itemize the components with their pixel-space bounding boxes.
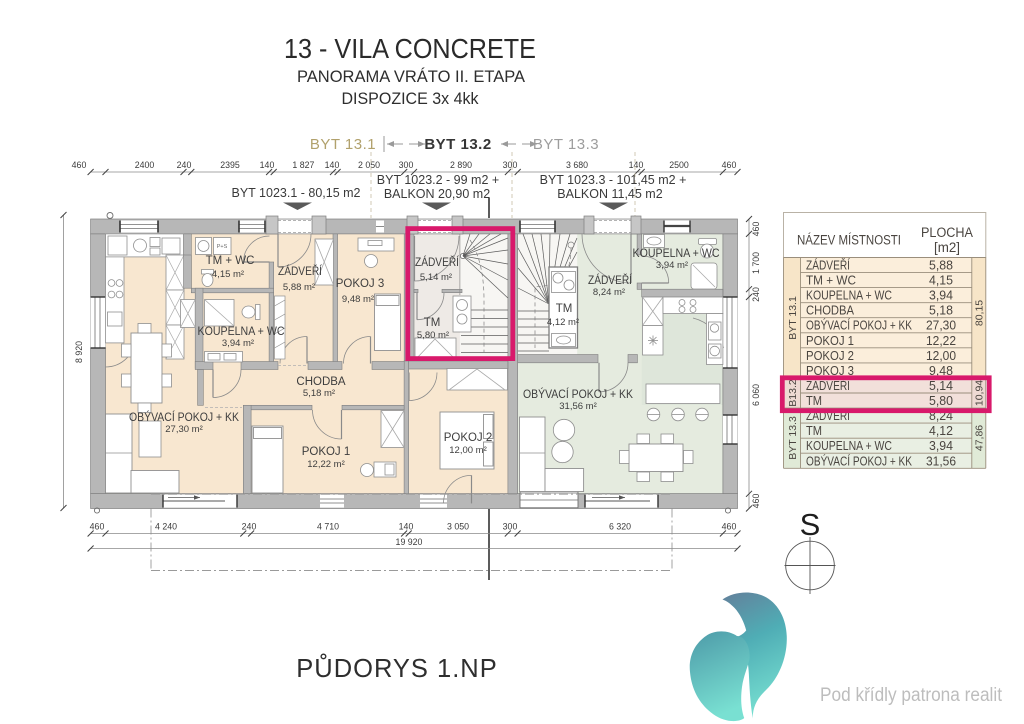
svg-text:27,30 m²: 27,30 m²: [165, 424, 203, 435]
svg-text:KOUPELNA + WC: KOUPELNA + WC: [806, 288, 892, 303]
svg-text:27,30: 27,30: [926, 318, 956, 333]
svg-text:3,94 m²: 3,94 m²: [656, 260, 688, 271]
svg-text:ZÁDVEŘÍ: ZÁDVEŘÍ: [415, 256, 460, 269]
svg-text:5,14: 5,14: [929, 378, 953, 393]
svg-text:4,12: 4,12: [929, 423, 953, 438]
svg-text:POKOJ 2: POKOJ 2: [806, 348, 854, 363]
svg-text:12,22: 12,22: [926, 333, 956, 348]
svg-text:B13.2: B13.2: [787, 379, 799, 407]
svg-text:P+S: P+S: [217, 244, 228, 250]
svg-text:POKOJ 1: POKOJ 1: [806, 333, 854, 348]
svg-text:8,24 m²: 8,24 m²: [593, 287, 625, 298]
svg-text:4 710: 4 710: [317, 522, 339, 532]
svg-text:140: 140: [399, 522, 414, 532]
svg-text:CHODBA: CHODBA: [806, 303, 854, 318]
svg-text:4,15 m²: 4,15 m²: [212, 269, 244, 280]
svg-text:KOUPELNA + WC: KOUPELNA + WC: [806, 438, 892, 453]
svg-text:BALKON 11,45 m2: BALKON 11,45 m2: [557, 187, 662, 201]
svg-text:5,80 m²: 5,80 m²: [417, 330, 449, 341]
svg-text:240: 240: [242, 522, 257, 532]
svg-text:POKOJ 3: POKOJ 3: [336, 278, 385, 290]
svg-text:13 - VILA CONCRETE: 13 - VILA CONCRETE: [284, 33, 536, 64]
svg-text:47,86: 47,86: [973, 425, 985, 451]
svg-text:PŮDORYS 1.NP: PŮDORYS 1.NP: [296, 652, 497, 683]
svg-text:PLOCHA: PLOCHA: [921, 225, 973, 240]
svg-text:12,00 m²: 12,00 m²: [449, 445, 487, 456]
svg-text:12,22 m²: 12,22 m²: [307, 459, 345, 470]
svg-text:TM: TM: [806, 423, 822, 438]
svg-text:POKOJ 2: POKOJ 2: [444, 432, 493, 444]
svg-text:BYT 1023.1 - 80,15 m2: BYT 1023.1 - 80,15 m2: [231, 186, 360, 200]
svg-text:240: 240: [751, 287, 761, 302]
svg-text:OBÝVACÍ POKOJ + KK: OBÝVACÍ POKOJ + KK: [523, 388, 633, 401]
svg-text:80,15: 80,15: [973, 300, 985, 326]
svg-text:OBÝVACÍ POKOJ + KK: OBÝVACÍ POKOJ + KK: [806, 318, 912, 333]
svg-text:BYT 1023.2 - 99 m2 +: BYT 1023.2 - 99 m2 +: [377, 173, 499, 187]
svg-text:NÁZEV MÍSTNOSTI: NÁZEV MÍSTNOSTI: [797, 233, 901, 248]
svg-text:ZÁDVEŘÍ: ZÁDVEŘÍ: [806, 258, 850, 273]
svg-text:BYT 1023.3 - 101,45 m2 +: BYT 1023.3 - 101,45 m2 +: [540, 173, 687, 187]
svg-text:460: 460: [751, 494, 761, 509]
svg-text:31,56 m²: 31,56 m²: [559, 401, 597, 412]
svg-text:3,94 m²: 3,94 m²: [222, 338, 254, 349]
svg-text:OBÝVACÍ POKOJ + KK: OBÝVACÍ POKOJ + KK: [806, 453, 912, 468]
svg-text:4,15: 4,15: [929, 273, 953, 288]
svg-text:4 240: 4 240: [155, 522, 177, 532]
svg-text:4,12 m²: 4,12 m²: [547, 317, 579, 328]
svg-text:BYT 13.2: BYT 13.2: [424, 136, 491, 153]
svg-text:3 680: 3 680: [566, 160, 588, 170]
svg-text:2 890: 2 890: [450, 160, 472, 170]
svg-text:CHODBA: CHODBA: [296, 376, 346, 388]
svg-text:19 920: 19 920: [396, 537, 423, 547]
svg-text:KOUPELNA + WC: KOUPELNA + WC: [198, 326, 285, 338]
svg-text:S: S: [800, 507, 821, 542]
svg-text:6 060: 6 060: [751, 384, 761, 406]
svg-text:5,80: 5,80: [929, 393, 953, 408]
svg-text:1 827: 1 827: [292, 160, 314, 170]
svg-text:5,14 m²: 5,14 m²: [420, 272, 452, 283]
svg-text:31,56: 31,56: [926, 453, 956, 468]
svg-text:2400: 2400: [135, 160, 155, 170]
svg-text:BALKON 20,90 m2: BALKON 20,90 m2: [384, 187, 490, 201]
svg-text:3,94: 3,94: [929, 288, 953, 303]
svg-text:2500: 2500: [669, 160, 689, 170]
svg-text:460: 460: [722, 522, 737, 532]
svg-text:3 050: 3 050: [447, 522, 469, 532]
svg-text:[m2]: [m2]: [934, 240, 960, 255]
svg-text:12,00: 12,00: [926, 348, 956, 363]
svg-text:140: 140: [260, 160, 275, 170]
svg-text:PANORAMA VRÁTO II. ETAPA: PANORAMA VRÁTO II. ETAPA: [297, 67, 525, 86]
svg-text:Pod křídly patrona realit: Pod křídly patrona realit: [820, 685, 1003, 706]
svg-text:ZÁDVEŘÍ: ZÁDVEŘÍ: [588, 274, 633, 287]
svg-text:TM + WC: TM + WC: [806, 273, 856, 288]
svg-text:POKOJ 1: POKOJ 1: [302, 446, 351, 458]
svg-text:TM: TM: [806, 393, 822, 408]
svg-text:BYT 13.1: BYT 13.1: [787, 296, 799, 340]
svg-text:1 700: 1 700: [751, 252, 761, 274]
svg-text:BYT 13.3: BYT 13.3: [533, 136, 599, 153]
svg-text:2395: 2395: [220, 160, 240, 170]
svg-text:9,48 m²: 9,48 m²: [342, 294, 374, 305]
svg-text:300: 300: [399, 160, 414, 170]
svg-text:OBÝVACÍ POKOJ + KK: OBÝVACÍ POKOJ + KK: [129, 411, 239, 424]
svg-text:BYT 13.1: BYT 13.1: [310, 136, 376, 153]
svg-text:6 320: 6 320: [609, 522, 631, 532]
svg-text:460: 460: [72, 160, 87, 170]
svg-text:BYT 13.3: BYT 13.3: [787, 416, 799, 460]
svg-text:5,88 m²: 5,88 m²: [283, 282, 315, 293]
svg-text:300: 300: [503, 160, 518, 170]
svg-text:5,18 m²: 5,18 m²: [303, 388, 335, 399]
svg-text:TM: TM: [424, 317, 441, 329]
svg-text:140: 140: [629, 160, 644, 170]
svg-text:460: 460: [722, 160, 737, 170]
svg-text:TM + WC: TM + WC: [206, 255, 255, 267]
svg-text:460: 460: [751, 222, 761, 237]
svg-text:KOUPELNA + WC: KOUPELNA + WC: [633, 248, 720, 260]
svg-text:5,18: 5,18: [929, 303, 953, 318]
svg-text:2 050: 2 050: [358, 160, 380, 170]
svg-text:10,94: 10,94: [973, 380, 985, 406]
svg-text:300: 300: [503, 522, 518, 532]
svg-text:TM: TM: [556, 303, 573, 315]
svg-text:ZÁDVEŘÍ: ZÁDVEŘÍ: [806, 378, 850, 393]
svg-text:5,88: 5,88: [929, 258, 953, 273]
svg-text:DISPOZICE 3x 4kk: DISPOZICE 3x 4kk: [342, 90, 480, 108]
svg-text:240: 240: [177, 160, 192, 170]
svg-text:140: 140: [325, 160, 340, 170]
svg-text:8 920: 8 920: [74, 341, 84, 363]
svg-text:3,94: 3,94: [929, 438, 953, 453]
svg-text:ZÁDVEŘÍ: ZÁDVEŘÍ: [278, 265, 323, 278]
svg-text:460: 460: [90, 522, 105, 532]
